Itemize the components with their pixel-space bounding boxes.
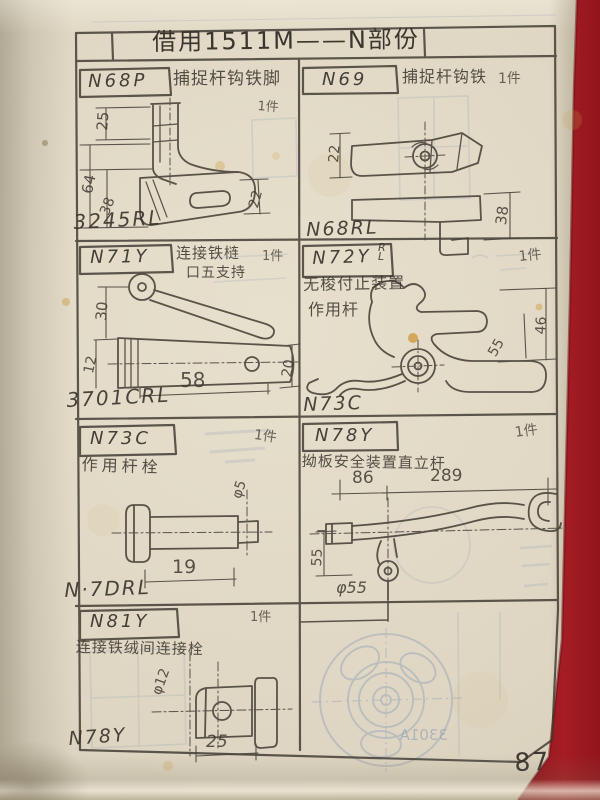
- dim-55-n78y: 55: [310, 548, 326, 567]
- suffix-l: L: [378, 253, 386, 262]
- bleedthrough-wheel: [312, 628, 462, 772]
- part-number-n78y: N78Y: [315, 427, 374, 446]
- part-qty-n69: 1件: [498, 72, 521, 87]
- part-qty-n78y: 1件: [514, 423, 539, 441]
- part-desc2-n72y: 作用杆: [308, 302, 359, 319]
- bottom-left-corner-shadow: [0, 740, 90, 800]
- dim-58: 58: [180, 370, 205, 391]
- dim-19: 19: [172, 558, 196, 578]
- dim-30: 30: [94, 301, 111, 321]
- part-desc-n69: 捕捉杆钩铁: [402, 69, 487, 86]
- dim-46: 46: [534, 316, 550, 335]
- part-number-n81y: N81Y: [90, 613, 149, 632]
- dim-phi55: φ55: [336, 580, 367, 597]
- sub-label-3245rl: 3245RL: [73, 207, 162, 233]
- dim-22-top: 22: [327, 144, 343, 163]
- dim-20: 20: [280, 358, 298, 378]
- part-desc-n71y: 连接铁梿: [176, 246, 240, 262]
- part-qty-n73c: 1件: [253, 428, 278, 446]
- dim-25: 25: [95, 111, 112, 131]
- dim-289: 289: [430, 468, 462, 486]
- sub-label-3701crl: 3701CRL: [66, 385, 171, 411]
- bleedthrough-label-3301a: 3301A: [400, 728, 448, 744]
- part-desc-n78y: 拗板安全装置直立杆: [302, 454, 446, 472]
- part-number-n68p: N68P: [88, 72, 148, 92]
- sub-label-n73c: N73C: [303, 394, 363, 416]
- bottom-edge-shadow: [0, 754, 600, 800]
- part-desc2-n71y: 口五支持: [186, 266, 246, 281]
- part-number-n72y-suffix: R L: [378, 244, 386, 262]
- photographed-catalog-page: 借用1511M——N部份 N68P 捕捉杆钩铁脚 1件 25 64 38 22 …: [0, 0, 600, 800]
- dim-86: 86: [352, 470, 374, 488]
- part-number-n69: N69: [322, 71, 367, 90]
- part-desc-n72y: 无梭付止装置: [303, 275, 405, 294]
- sub-label-n7drl: N·7DRL: [64, 577, 151, 601]
- part-qty-n68p: 1件: [257, 100, 279, 115]
- part-desc-n73c: 作用杆栓: [81, 457, 162, 477]
- part-number-n72y: N72Y: [312, 248, 372, 269]
- part-number-n71y: N71Y: [90, 248, 150, 268]
- dim-38-side: 38: [494, 205, 512, 226]
- part-number-n73c: N73C: [90, 430, 151, 449]
- page-title: 借用1511M——N部份: [152, 27, 420, 55]
- part-qty-n81y: 1件: [250, 611, 271, 625]
- book-cover-red: [518, 0, 600, 800]
- part-desc-n68p: 捕捉杆钩铁脚: [173, 71, 281, 89]
- part-desc-n81y: 连接铁绒间连接栓: [76, 640, 204, 658]
- part-qty-n72y: 1件: [518, 248, 542, 265]
- part-qty-n71y: 1件: [262, 250, 283, 264]
- drawing-n72y-safety-lever: [307, 281, 556, 395]
- sub-label-n68rl: N68RL: [306, 218, 379, 240]
- dim-25-n81y: 25: [206, 734, 228, 752]
